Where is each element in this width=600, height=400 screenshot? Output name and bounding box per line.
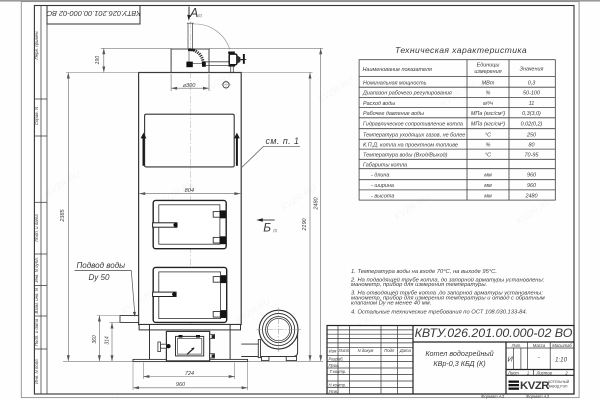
svg-text:Б: Б — [263, 221, 271, 235]
svg-text:Инв. N подл.: Инв. N подл. — [34, 358, 39, 384]
svg-text:960: 960 — [527, 183, 536, 189]
svg-text:Инв. N дубл.: Инв. N дубл. — [34, 257, 39, 282]
svg-text:Т.контр.: Т.контр. — [330, 369, 347, 374]
svg-text:KVZR: KVZR — [520, 380, 549, 392]
svg-text:N докум: N докум — [358, 348, 374, 353]
svg-text:Дата: Дата — [399, 348, 412, 353]
svg-text:Расход воды: Расход воды — [363, 101, 395, 107]
svg-text:- ширина: - ширина — [371, 183, 394, 189]
svg-text:⌀300: ⌀300 — [183, 83, 197, 89]
svg-text:1. Температура воды на вход: 1. Температура воды на входе 70°С, на вы… — [351, 269, 497, 275]
svg-text:(1): (1) — [273, 228, 277, 232]
svg-text:804: 804 — [185, 188, 194, 194]
svg-text:Перв. примен.: Перв. примен. — [34, 30, 39, 59]
svg-text:80: 80 — [528, 143, 534, 149]
svg-text:Подп. и дата: Подп. и дата — [34, 318, 39, 346]
svg-text:Взам. инв. N: Взам. инв. N — [34, 287, 39, 313]
svg-text:Изм: Изм — [329, 348, 337, 353]
svg-text:Листов: Листов — [536, 371, 553, 376]
svg-text:- высота: - высота — [371, 193, 394, 199]
svg-text:А: А — [189, 6, 198, 20]
svg-text:Котел водогрейный: Котел водогрейный — [425, 349, 493, 358]
svg-text:измерения: измерения — [474, 69, 501, 75]
svg-text:Лит.: Лит. — [511, 343, 522, 348]
svg-text:724: 724 — [185, 371, 194, 377]
svg-text:Лист: Лист — [338, 348, 350, 353]
svg-text:0,3(3,0): 0,3(3,0) — [522, 111, 541, 117]
svg-text:м³/ч: м³/ч — [483, 101, 493, 107]
svg-text:мм: мм — [484, 173, 492, 179]
svg-text:Единицы: Единицы — [477, 63, 500, 69]
svg-text:Температура уходящих газов, не: Температура уходящих газов, не более — [363, 132, 465, 138]
svg-text:2480: 2480 — [524, 193, 537, 199]
svg-text:И: И — [508, 355, 514, 364]
svg-text:Температура воды (Вход/Выход): Температура воды (Вход/Выход) — [363, 153, 448, 159]
svg-text:2190: 2190 — [302, 217, 308, 231]
svg-text:(1): (1) — [198, 13, 202, 17]
svg-text:0,02(0,2): 0,02(0,2) — [521, 122, 543, 128]
svg-text:Формат А3: Формат А3 — [526, 394, 550, 399]
svg-text:1:10: 1:10 — [555, 357, 568, 364]
svg-text:МВт: МВт — [482, 80, 495, 86]
svg-text:1: 1 — [527, 371, 529, 376]
svg-text:Наименование показателя: Наименование показателя — [363, 67, 432, 73]
svg-text:КВр-0,3 КБД (К): КВр-0,3 КБД (К) — [433, 359, 485, 368]
svg-text:Н.контр.: Н.контр. — [329, 382, 347, 387]
svg-text:Гидравлическое сопротивление к: Гидравлическое сопротивление котла — [363, 122, 463, 128]
svg-text:КВТУ.026.201.00.000-02 ВО: КВТУ.026.201.00.000-02 ВО — [415, 326, 573, 340]
svg-text:Значения: Значения — [520, 67, 544, 73]
svg-text:Справ. N: Справ. N — [34, 106, 39, 125]
svg-text:мм: мм — [484, 183, 492, 189]
svg-text:Масштаб: Масштаб — [552, 343, 572, 348]
svg-text:мм: мм — [484, 193, 492, 199]
svg-text:Техническая характеристика: Техническая характеристика — [395, 45, 527, 55]
svg-text:клапаном Dу не менее 40 мм.: клапаном Dу не менее 40 мм. — [351, 300, 431, 306]
svg-text:%: % — [486, 143, 491, 149]
svg-text:°С: °С — [485, 132, 491, 138]
svg-text:Подп: Подп — [384, 348, 395, 353]
svg-text:Подп. и дата: Подп. и дата — [34, 214, 39, 242]
svg-text:314: 314 — [104, 336, 110, 345]
svg-text:360: 360 — [92, 335, 98, 344]
svg-text:Разраб.: Разраб. — [329, 356, 344, 361]
svg-text:Подвод воды: Подвод воды — [77, 261, 126, 270]
svg-text:Dу 50: Dу 50 — [89, 273, 110, 282]
svg-text:КВТУ.026.201.00.000-02 ВО: КВТУ.026.201.00.000-02 ВО — [46, 9, 140, 18]
svg-text:250: 250 — [526, 132, 536, 138]
svg-text:см. п. 1: см. п. 1 — [266, 136, 300, 146]
svg-text:Формат А3: Формат А3 — [481, 394, 505, 399]
svg-text:МПа (кгс/см²): МПа (кгс/см²) — [471, 122, 505, 128]
svg-text:70-95: 70-95 — [525, 153, 540, 159]
svg-text:4. Остальные технические тр: 4. Остальные технические требования по О… — [351, 310, 527, 316]
svg-text:- длина: - длина — [371, 173, 389, 179]
svg-text:Рабочее давление воды: Рабочее давление воды — [363, 111, 424, 117]
svg-text:МПа (кгс/см²): МПа (кгс/см²) — [471, 111, 505, 117]
svg-text:11: 11 — [529, 101, 535, 107]
svg-text:Масса: Масса — [533, 343, 546, 348]
svg-text:960: 960 — [176, 382, 186, 388]
svg-text:%: % — [486, 91, 491, 97]
svg-text:2480: 2480 — [314, 196, 320, 210]
svg-text:190: 190 — [95, 56, 101, 65]
svg-text:ЗАВОД РЭП: ЗАВОД РЭП — [548, 385, 568, 389]
svg-text:Диапазон рабочего регулировани: Диапазон рабочего регулирования — [362, 91, 452, 97]
svg-text:Пров.: Пров. — [329, 363, 340, 368]
svg-text:КОТЕЛЬНЫЙ: КОТЕЛЬНЫЙ — [548, 380, 570, 384]
svg-text:Номинальная мощность: Номинальная мощность — [363, 80, 427, 86]
svg-text:°С: °С — [485, 153, 491, 159]
svg-text:0,3: 0,3 — [528, 80, 536, 86]
svg-text:К.П.Д. котла на проектном топл: К.П.Д. котла на проектном топливе — [363, 143, 458, 149]
svg-text:2385: 2385 — [60, 208, 66, 222]
svg-text:50-100: 50-100 — [523, 91, 540, 97]
svg-text:Лист: Лист — [507, 371, 519, 376]
svg-text:960: 960 — [527, 173, 536, 179]
svg-text:Габариты котла: Габариты котла — [363, 162, 407, 168]
svg-text:манометр, прибор для измерения: манометр, прибор для измерения температу… — [351, 282, 487, 288]
svg-text:Утв.: Утв. — [329, 389, 339, 394]
